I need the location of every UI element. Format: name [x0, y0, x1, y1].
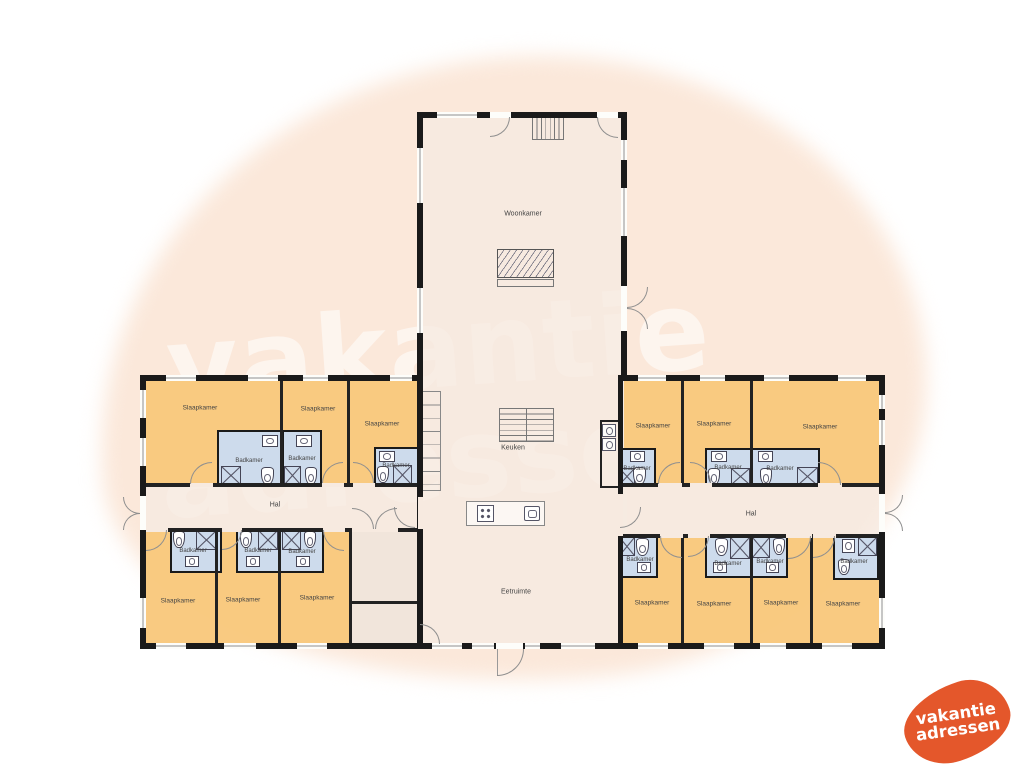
label-slaapkamer: Slaapkamer	[803, 424, 838, 431]
storage-room	[352, 603, 417, 643]
door-arc	[627, 308, 648, 329]
shower-icon	[282, 530, 301, 550]
window	[248, 375, 278, 381]
sink-icon	[711, 451, 727, 462]
interior-wall	[347, 375, 350, 485]
window	[303, 375, 328, 381]
window	[638, 643, 668, 649]
window	[472, 643, 494, 649]
stove-icon	[477, 505, 494, 522]
label-slaapkamer: Slaapkamer	[226, 597, 261, 604]
window	[525, 643, 540, 649]
staircase	[532, 115, 564, 140]
interior-wall	[750, 537, 753, 643]
brand-logo: vakantie adressen	[903, 684, 1011, 760]
kitchen-sink-icon	[524, 506, 540, 521]
label-badkamer: Badkamer	[244, 548, 271, 554]
interior-wall	[352, 601, 417, 604]
interior-wall	[600, 486, 618, 488]
staircase	[499, 408, 554, 442]
wardrobe-cabinets	[421, 391, 441, 491]
wall-opening	[322, 483, 344, 487]
sink-icon	[637, 562, 651, 573]
shower-icon	[196, 530, 217, 550]
shower-icon	[752, 537, 770, 558]
window	[838, 375, 866, 381]
window	[561, 643, 595, 649]
label-slaapkamer: Slaapkamer	[161, 598, 196, 605]
label-eetruimte: Eetruimte	[501, 589, 531, 596]
label-hal: Hal	[746, 511, 757, 518]
sink-icon	[630, 451, 645, 462]
window	[621, 140, 627, 160]
door-arc	[627, 287, 648, 308]
door-arc	[123, 497, 140, 514]
window	[417, 288, 423, 333]
window	[760, 643, 786, 649]
label-slaapkamer: Slaapkamer	[826, 601, 861, 608]
window	[822, 643, 852, 649]
label-slaapkamer: Slaapkamer	[183, 405, 218, 412]
label-slaapkamer: Slaapkamer	[635, 600, 670, 607]
window	[621, 188, 627, 236]
label-slaapkamer: Slaapkamer	[697, 421, 732, 428]
interior-wall	[278, 530, 281, 643]
label-slaapkamer: Slaapkamer	[301, 406, 336, 413]
label-badkamer: Badkamer	[756, 559, 783, 565]
label-slaapkamer: Slaapkamer	[300, 595, 335, 602]
label-badkamer: Badkamer	[766, 466, 793, 472]
shower-icon	[730, 537, 750, 559]
fireplace	[497, 249, 554, 278]
window	[166, 375, 196, 381]
label-keuken: Keuken	[501, 445, 525, 452]
window	[224, 643, 256, 649]
window	[437, 112, 477, 118]
interior-wall	[750, 375, 753, 485]
sink-icon	[262, 435, 278, 447]
label-badkamer: Badkamer	[288, 549, 315, 555]
fireplace-hearth	[497, 279, 554, 287]
window	[140, 598, 146, 628]
window	[879, 420, 885, 445]
appliance-icon	[602, 424, 616, 437]
window	[638, 375, 666, 381]
label-slaapkamer: Slaapkamer	[697, 601, 732, 608]
door-arc	[885, 495, 903, 513]
floor-plan-image: vakantie adressen WoonkamerKeukenEetruim…	[0, 0, 1024, 768]
door-arc	[123, 513, 140, 530]
label-badkamer: Badkamer	[623, 466, 650, 472]
wall-opening	[418, 497, 423, 529]
sink-icon	[185, 556, 199, 567]
interior-wall	[215, 530, 218, 643]
label-badkamer: Badkamer	[714, 465, 741, 471]
shower-icon	[258, 530, 278, 550]
sink-icon	[296, 556, 310, 567]
interior-wall	[280, 375, 283, 485]
window	[156, 643, 186, 649]
label-woonkamer: Woonkamer	[504, 211, 542, 218]
appliance-icon	[602, 438, 616, 451]
door-arc	[497, 649, 524, 676]
shower-icon	[858, 537, 877, 556]
wall-opening	[690, 483, 712, 487]
window	[879, 395, 885, 409]
label-badkamer: Badkamer	[179, 548, 206, 554]
sink-icon	[758, 451, 773, 462]
label-badkamer: Badkamer	[382, 463, 409, 469]
interior-wall	[349, 528, 352, 643]
label-badkamer: Badkamer	[626, 557, 653, 563]
wall-opening	[353, 483, 375, 487]
sink-icon	[842, 539, 855, 553]
label-badkamer: Badkamer	[288, 456, 315, 462]
label-slaapkamer: Slaapkamer	[764, 600, 799, 607]
storage-room	[352, 531, 417, 601]
label-badkamer: Badkamer	[235, 458, 262, 464]
door-opening	[140, 496, 146, 530]
floor-plan: WoonkamerKeukenEetruimteHalHalSlaapkamer…	[0, 0, 1024, 768]
window	[700, 375, 725, 381]
window	[140, 390, 146, 418]
window	[417, 148, 423, 203]
sink-icon	[296, 435, 312, 447]
sink-icon	[379, 451, 395, 462]
label-badkamer: Badkamer	[840, 559, 867, 565]
window	[704, 643, 734, 649]
door-arc	[885, 513, 903, 531]
window	[297, 643, 327, 649]
interior-wall	[600, 420, 602, 488]
interior-wall	[600, 420, 618, 422]
sink-icon	[246, 556, 260, 567]
window	[390, 375, 412, 381]
interior-wall	[140, 483, 422, 487]
label-slaapkamer: Slaapkamer	[365, 421, 400, 428]
window	[140, 438, 146, 466]
floor-area	[417, 112, 627, 649]
window	[879, 598, 885, 628]
label-badkamer: Badkamer	[714, 561, 741, 567]
interior-wall	[681, 375, 684, 485]
logo-text: vakantie adressen	[898, 677, 1016, 767]
label-slaapkamer: Slaapkamer	[636, 423, 671, 430]
window	[764, 375, 789, 381]
label-hal: Hal	[270, 502, 281, 509]
